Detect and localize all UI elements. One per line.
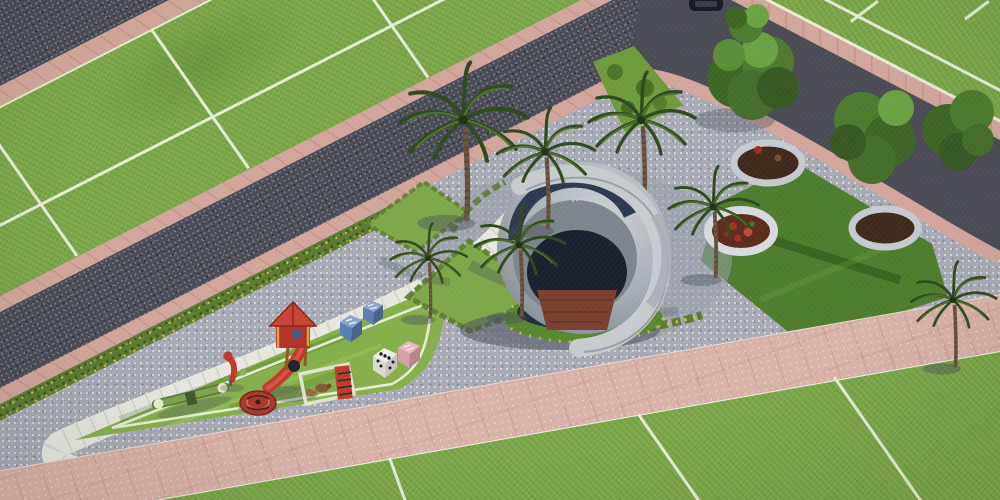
play-cubes bbox=[340, 301, 420, 378]
tree bbox=[695, 32, 799, 132]
tree bbox=[830, 90, 916, 184]
palm-tree bbox=[911, 262, 996, 375]
tree bbox=[922, 90, 994, 171]
playhouse-slide bbox=[258, 302, 318, 402]
car bbox=[687, 0, 725, 17]
spring-rider bbox=[220, 352, 247, 393]
aerial-render bbox=[0, 0, 1000, 500]
palm-tree bbox=[391, 223, 467, 325]
merry-go-round bbox=[238, 391, 278, 415]
park-objects-layer bbox=[0, 0, 1000, 500]
white-die bbox=[373, 348, 397, 378]
